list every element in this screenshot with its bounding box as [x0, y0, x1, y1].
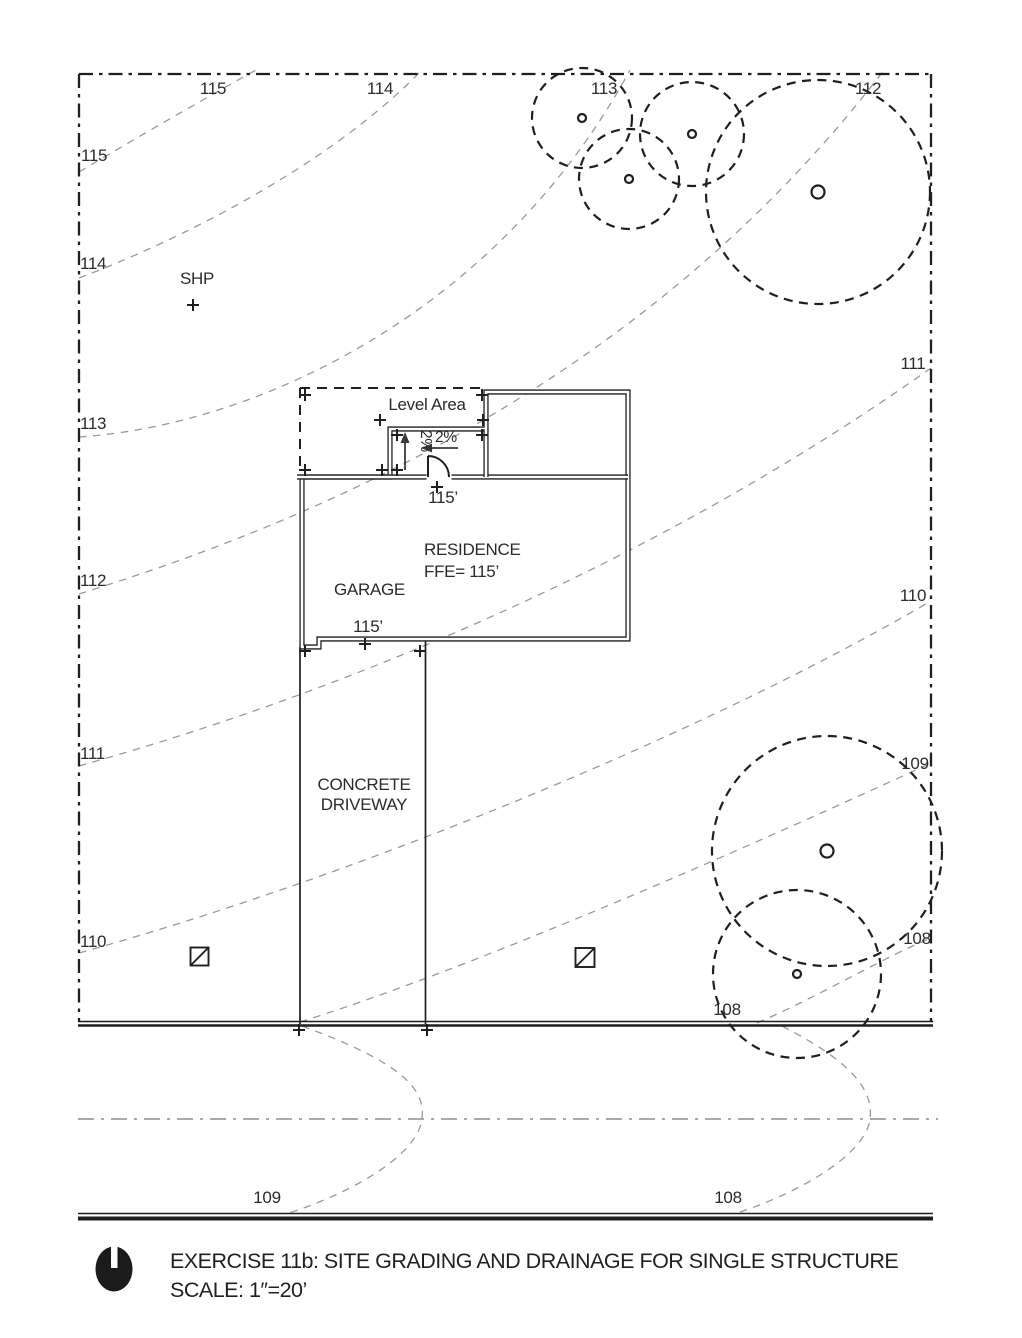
contour-label-top-115: 115 — [200, 79, 226, 98]
title-block-logo-notch — [111, 1245, 118, 1268]
tree-trunk-1 — [578, 114, 586, 122]
contour-label-below-109: 109 — [253, 1188, 280, 1207]
tree-trunk-6 — [793, 970, 801, 978]
residence-label: RESIDENCE — [424, 540, 521, 559]
drainage-inlet-symbols — [191, 948, 595, 968]
contour-113 — [79, 70, 630, 437]
contour-108-road-crossing — [734, 1026, 870, 1214]
contour-label-street-108: 108 — [713, 1000, 740, 1019]
contour-114 — [79, 70, 422, 278]
building-footprint — [297, 392, 628, 647]
slope-label-vertical: 2% — [417, 430, 434, 452]
concrete-driveway-edges — [300, 639, 426, 1024]
title-block-scale: SCALE: 1″=20’ — [170, 1278, 307, 1302]
contour-label-below-108: 108 — [714, 1188, 741, 1207]
contour-label-right-109: 109 — [901, 754, 928, 773]
title-block: EXERCISE 11b: SITE GRADING AND DRAINAGE … — [96, 1245, 899, 1302]
driveway-label-line2: DRIVEWAY — [321, 795, 407, 814]
inlet-symbol-east-diagonal — [576, 948, 595, 967]
contour-111 — [79, 368, 931, 766]
contour-label-right-108: 108 — [903, 929, 930, 948]
tree-symbols — [532, 68, 942, 1058]
street-edges — [78, 1022, 933, 1219]
level-area-label: Level Area — [388, 395, 466, 414]
contour-label-left-113: 113 — [80, 414, 106, 433]
contour-label-top-113: 113 — [591, 79, 617, 98]
contour-label-left-110: 110 — [80, 932, 106, 951]
contour-label-top-112: 112 — [855, 79, 881, 98]
title-block-title: EXERCISE 11b: SITE GRADING AND DRAINAGE … — [170, 1249, 898, 1273]
contour-109-road-crossing — [286, 1026, 422, 1214]
slope-arrow-up-head — [401, 432, 410, 443]
contour-112 — [79, 70, 884, 594]
contour-110 — [79, 601, 931, 953]
shp-label: SHP — [180, 269, 214, 288]
site-plan-page: 115 114 113 112 115 114 113 112 111 110 … — [0, 0, 1022, 1338]
tree-trunk-3 — [625, 175, 633, 183]
site-plan-drawing: 115 114 113 112 115 114 113 112 111 110 … — [0, 0, 1022, 1338]
building-outline-core — [302, 392, 628, 647]
inlet-symbol-west-diagonal — [191, 948, 209, 966]
residence-ffe-label: FFE= 115’ — [424, 562, 499, 581]
contour-label-left-115: 115 — [81, 146, 107, 165]
driveway-label-line1: CONCRETE — [318, 775, 411, 794]
contour-label-left-111: 111 — [80, 744, 105, 763]
contour-108-upper — [757, 938, 931, 1023]
tree-trunk-5 — [821, 845, 834, 858]
plan-labels: 115 114 113 112 115 114 113 112 111 110 … — [80, 79, 931, 1207]
tree-trunk-2 — [688, 130, 696, 138]
contour-label-top-114: 114 — [367, 79, 393, 98]
contour-label-left-112: 112 — [80, 571, 106, 590]
contour-label-left-114: 114 — [80, 254, 106, 273]
contour-label-right-110: 110 — [900, 586, 926, 605]
garage-label: GARAGE — [334, 580, 405, 599]
contour-lines — [79, 70, 931, 1214]
entry-elevation-label: 115’ — [428, 488, 458, 507]
garage-elevation-label: 115’ — [353, 617, 383, 636]
door-opening — [427, 473, 452, 481]
slope-label-horizontal: 2% — [435, 429, 457, 446]
contour-label-right-111: 111 — [901, 354, 926, 373]
tree-trunk-4 — [812, 186, 825, 199]
